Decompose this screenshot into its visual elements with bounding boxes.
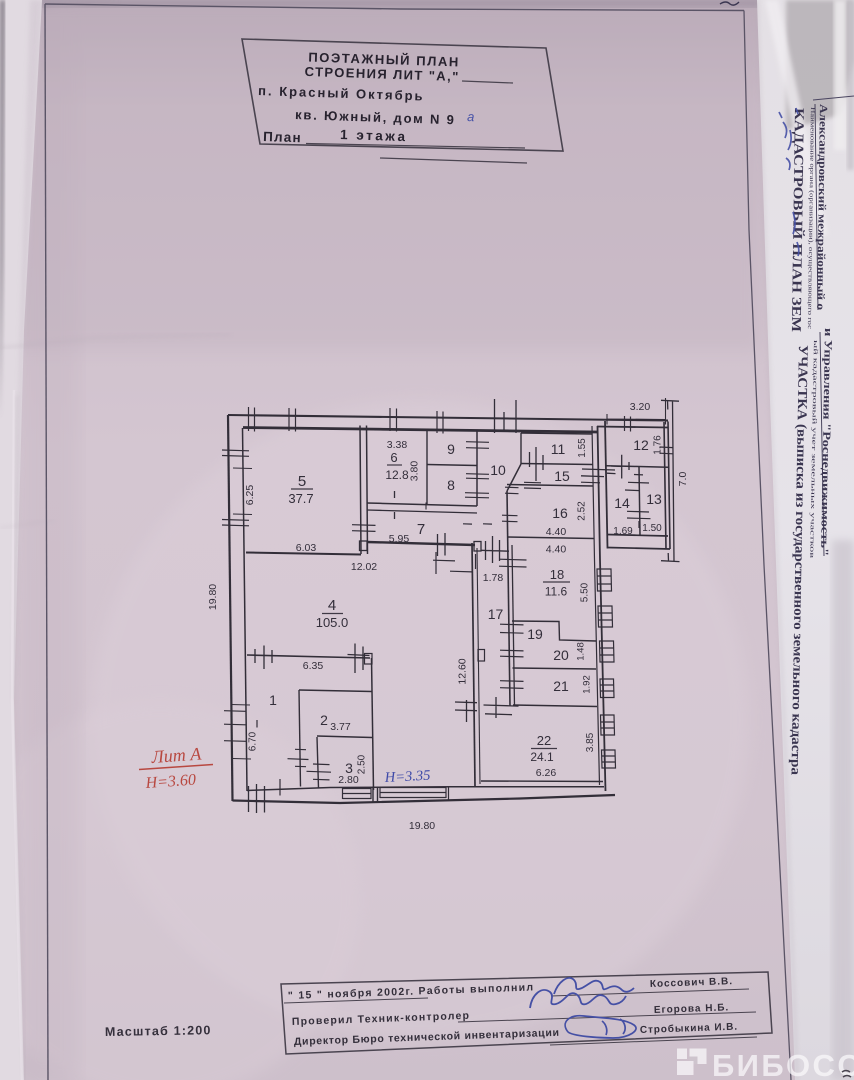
svg-text:13: 13 (646, 491, 662, 507)
svg-text:8: 8 (447, 477, 455, 493)
svg-text:10: 10 (490, 462, 506, 478)
svg-text:12.60: 12.60 (457, 658, 469, 684)
svg-text:19.80: 19.80 (409, 820, 435, 832)
svg-text:12: 12 (633, 437, 649, 453)
svg-text:Н=3.60: Н=3.60 (144, 772, 196, 793)
svg-text:3.80: 3.80 (409, 461, 421, 482)
svg-text:3.85: 3.85 (585, 732, 596, 752)
svg-text:Лит А: Лит А (150, 744, 203, 768)
svg-text:14: 14 (614, 495, 630, 511)
svg-text:3.77: 3.77 (330, 721, 351, 733)
svg-text:7.0: 7.0 (677, 472, 689, 487)
svg-text:6.26: 6.26 (536, 767, 557, 779)
svg-text:1.69: 1.69 (613, 526, 633, 537)
svg-text:105.0: 105.0 (316, 615, 349, 630)
svg-text:4.40: 4.40 (546, 544, 567, 556)
svg-text:1.76: 1.76 (653, 435, 664, 455)
svg-text:Н=3.35: Н=3.35 (383, 768, 430, 786)
svg-text:6: 6 (390, 450, 397, 465)
svg-text:22: 22 (537, 733, 551, 748)
svg-text:17: 17 (488, 606, 504, 622)
svg-text:11.6: 11.6 (545, 585, 568, 599)
svg-text:11: 11 (551, 441, 566, 457)
svg-text:12.8: 12.8 (385, 468, 409, 482)
svg-text:План: План (263, 129, 302, 145)
svg-text:4: 4 (328, 597, 336, 614)
svg-text:37.7: 37.7 (288, 491, 313, 506)
svg-text:1.48: 1.48 (576, 642, 587, 661)
svg-text:1.55: 1.55 (577, 438, 588, 458)
svg-text:6.70: 6.70 (248, 731, 259, 751)
svg-text:12.02: 12.02 (351, 561, 377, 573)
svg-text:20: 20 (553, 647, 569, 663)
svg-text:1 этажа: 1 этажа (340, 127, 408, 144)
svg-text:2.52: 2.52 (577, 501, 588, 521)
svg-text:18: 18 (550, 567, 564, 582)
svg-text:6.35: 6.35 (303, 660, 324, 672)
svg-text:15: 15 (554, 468, 570, 484)
svg-text:4.40: 4.40 (546, 526, 567, 538)
svg-text:1.78: 1.78 (483, 572, 504, 584)
svg-text:24.1: 24.1 (530, 750, 554, 764)
svg-text:2.50: 2.50 (357, 754, 368, 774)
svg-text:9: 9 (447, 441, 455, 457)
svg-text:7: 7 (417, 521, 425, 538)
svg-text:5: 5 (298, 473, 306, 490)
svg-text:5.95: 5.95 (389, 533, 410, 545)
svg-text:1.92: 1.92 (582, 675, 593, 694)
svg-text:3.20: 3.20 (630, 401, 651, 413)
svg-text:6.03: 6.03 (296, 542, 317, 554)
svg-text:1: 1 (269, 692, 277, 708)
svg-text:19.80: 19.80 (207, 584, 219, 610)
svg-text:6.25: 6.25 (244, 485, 256, 506)
svg-text:21: 21 (553, 678, 569, 694)
svg-text:Масштаб 1:200: Масштаб 1:200 (105, 1023, 212, 1039)
svg-text:БИБОСС: БИБОСС (712, 1048, 854, 1080)
svg-text:5.50: 5.50 (580, 582, 591, 602)
svg-text:а: а (467, 109, 475, 124)
svg-text:19: 19 (527, 626, 543, 642)
svg-text:1.50: 1.50 (642, 523, 662, 534)
svg-text:2: 2 (320, 712, 328, 728)
svg-text:16: 16 (552, 505, 568, 521)
svg-text:2.80: 2.80 (338, 774, 359, 786)
